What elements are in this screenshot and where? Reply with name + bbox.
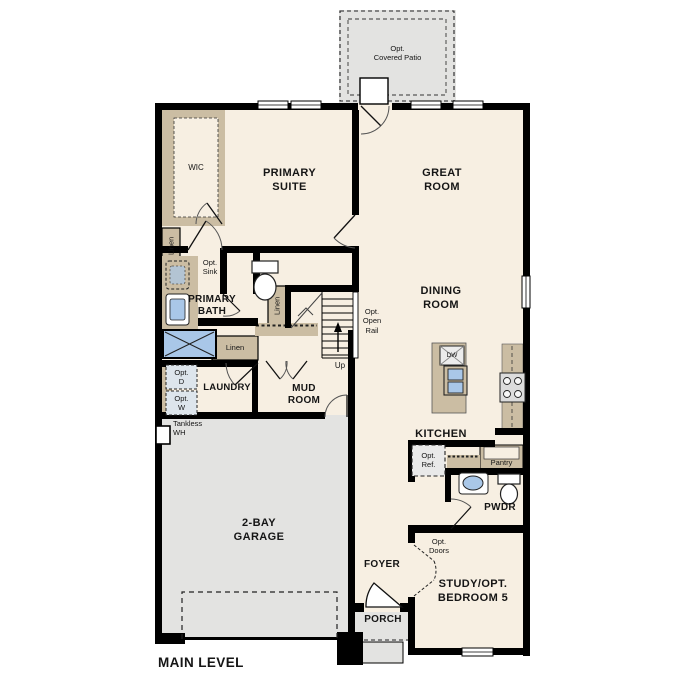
wic-label: WIC <box>176 160 216 176</box>
kitchen-label: KITCHEN <box>394 426 488 442</box>
laundry-label: LAUNDRY <box>198 380 256 394</box>
main-level-title: MAIN LEVEL <box>158 653 298 671</box>
opt-doors-label: Opt. Doors <box>418 536 460 556</box>
tankless-wh-label: Tankless WH <box>173 418 219 438</box>
powder-sink <box>459 473 488 494</box>
study-label: STUDY/OPT. BEDROOM 5 <box>424 575 522 607</box>
opt-open-rail-label: Opt. Open Rail <box>355 305 389 337</box>
pwdr-label: PWDR <box>474 500 526 516</box>
pantry-label: Pantry <box>480 457 523 469</box>
opt-ref-label: Opt. Ref. <box>412 449 445 471</box>
foyer-label: FOYER <box>356 558 408 572</box>
dining-room-label: DINING ROOM <box>395 283 487 313</box>
primary-suite-label: PRIMARY SUITE <box>232 165 347 195</box>
floor-plan-drawing <box>0 0 687 687</box>
tub-shower <box>163 330 216 358</box>
linen-hall-label: Linen <box>268 287 286 325</box>
dishwasher-label: DW <box>440 349 464 362</box>
garage-label: 2-BAY GARAGE <box>200 515 318 545</box>
covered-patio-label: Opt. Covered Patio <box>339 38 456 68</box>
opt-washer-label: Opt. W <box>166 392 197 414</box>
range-stove <box>500 373 525 402</box>
mud-room-label: MUD ROOM <box>272 381 336 409</box>
primary-bath-label: PRIMARY BATH <box>164 292 260 320</box>
powder-counter <box>447 455 480 469</box>
floor-plan: Opt. Covered Patio WIC PRIMARY SUITE GRE… <box>0 0 687 687</box>
linen-primary-label: Linen <box>162 229 180 263</box>
up-label: Up <box>328 360 352 372</box>
great-room-label: GREAT ROOM <box>388 165 496 195</box>
opt-sink-label: Opt. Sink <box>191 257 229 277</box>
linen-bath-label: Linen <box>212 341 258 355</box>
island-sink <box>444 366 467 395</box>
porch-label: PORCH <box>356 613 410 627</box>
opt-dryer-label: Opt. D <box>166 366 197 388</box>
tankless-water-heater <box>156 426 170 444</box>
